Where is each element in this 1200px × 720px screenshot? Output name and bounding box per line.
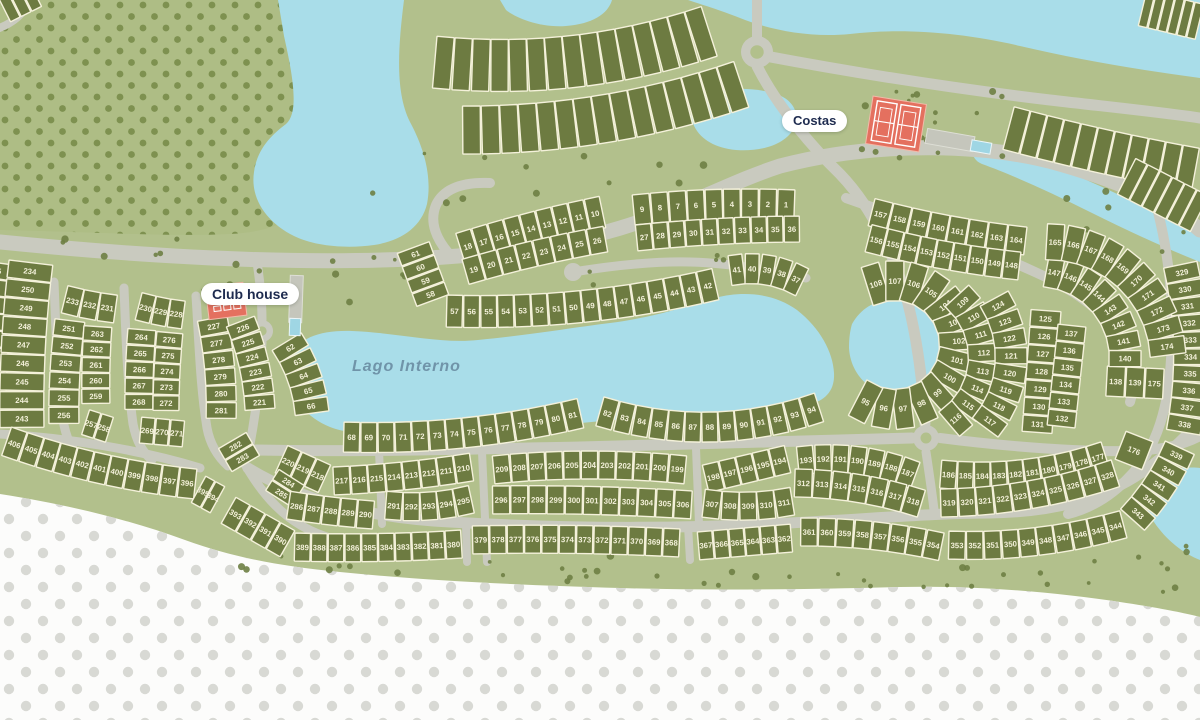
tree-icon — [337, 563, 342, 568]
lot-number: 3 — [748, 200, 753, 209]
lot-248[interactable]: 248 — [2, 316, 47, 336]
lot-320[interactable]: 320 — [958, 488, 976, 517]
lot-377[interactable]: 377 — [507, 525, 523, 553]
lot-231[interactable]: 231 — [97, 293, 117, 323]
lot-374[interactable]: 374 — [559, 525, 575, 553]
lot-335[interactable]: 335 — [1173, 365, 1200, 382]
lot-number: 68 — [347, 433, 357, 442]
lot-291[interactable]: 291 — [385, 491, 403, 520]
lot-365[interactable]: 365 — [729, 528, 746, 557]
lot-number: 279 — [213, 372, 227, 382]
lot-number: 130 — [1032, 402, 1046, 412]
lot-137[interactable]: 137 — [1056, 324, 1086, 343]
lot-86[interactable]: 86 — [667, 410, 685, 441]
lot-270[interactable]: 270 — [154, 418, 170, 445]
lot-298[interactable]: 298 — [529, 486, 546, 514]
lot-number: 360 — [820, 528, 834, 537]
lot-number: 291 — [387, 501, 401, 511]
lot-73[interactable]: 73 — [428, 420, 446, 451]
lot-250[interactable]: 250 — [5, 279, 51, 301]
lot-274[interactable]: 274 — [154, 363, 181, 379]
lot-number: 193 — [799, 455, 813, 465]
lot-251[interactable]: 251 — [53, 319, 85, 339]
lot-303[interactable]: 303 — [619, 487, 637, 516]
lot-359[interactable]: 359 — [836, 519, 854, 548]
tree-icon — [393, 258, 397, 262]
tree-icon — [158, 251, 164, 257]
lot-number: 372 — [595, 536, 609, 545]
lot-185[interactable]: 185 — [957, 461, 973, 490]
lot-382[interactable]: 382 — [412, 532, 429, 561]
lot-262[interactable]: 262 — [82, 342, 111, 358]
lot-number: 184 — [976, 472, 990, 481]
lot-279[interactable]: 279 — [205, 368, 236, 386]
lot-number: 276 — [162, 335, 176, 345]
lot-371[interactable]: 371 — [611, 526, 628, 554]
lot-51[interactable]: 51 — [548, 292, 566, 325]
lot-number: 72 — [416, 432, 426, 441]
tree-icon — [895, 90, 899, 94]
lot-number: 57 — [450, 307, 459, 316]
lot-121[interactable]: 121 — [995, 348, 1027, 365]
lot[interactable] — [463, 106, 481, 154]
lot-246[interactable]: 246 — [0, 354, 45, 373]
lot-number: 370 — [630, 537, 644, 546]
lot-269[interactable]: 269 — [139, 417, 155, 444]
lot-shape — [518, 103, 539, 152]
lot-41[interactable]: 41 — [728, 254, 746, 286]
lot-367[interactable]: 367 — [697, 531, 714, 560]
lot-210[interactable]: 210 — [453, 453, 473, 483]
lot-243[interactable]: 243 — [0, 410, 44, 428]
lot-265[interactable]: 265 — [126, 345, 155, 362]
lot-49[interactable]: 49 — [581, 289, 600, 323]
lot-85[interactable]: 85 — [649, 408, 669, 440]
lot-384[interactable]: 384 — [378, 533, 394, 561]
lot-375[interactable]: 375 — [542, 525, 558, 553]
lot-319[interactable]: 319 — [940, 489, 957, 517]
lot-215[interactable]: 215 — [367, 464, 385, 493]
lot-292[interactable]: 292 — [403, 493, 419, 521]
tree-icon — [859, 146, 865, 152]
lot-302[interactable]: 302 — [601, 487, 619, 516]
lot-209[interactable]: 209 — [492, 454, 511, 483]
lot-number: 313 — [815, 480, 829, 490]
lot-299[interactable]: 299 — [547, 486, 564, 514]
lot-number: 387 — [329, 543, 342, 552]
lot-208[interactable]: 208 — [510, 453, 528, 482]
lot[interactable] — [500, 104, 520, 153]
lot[interactable] — [491, 39, 508, 91]
lot-271[interactable]: 271 — [169, 420, 185, 447]
lot-216[interactable]: 216 — [350, 465, 368, 494]
lot-number: 247 — [17, 340, 30, 350]
lot-249[interactable]: 249 — [3, 298, 48, 319]
lot-56[interactable]: 56 — [464, 295, 480, 327]
lot-389[interactable]: 389 — [294, 533, 310, 561]
tree-icon — [945, 583, 949, 587]
lot-304[interactable]: 304 — [637, 488, 655, 517]
lot-264[interactable]: 264 — [127, 329, 156, 346]
lot-number: 134 — [1059, 380, 1074, 390]
lot-1[interactable]: 1 — [777, 189, 795, 220]
lot-357[interactable]: 357 — [870, 522, 890, 552]
lot-33[interactable]: 33 — [734, 217, 750, 244]
lot-272[interactable]: 272 — [153, 396, 179, 411]
lot-40[interactable]: 40 — [745, 254, 759, 284]
lot[interactable] — [471, 39, 490, 92]
lot-358[interactable]: 358 — [853, 520, 872, 549]
lot-29[interactable]: 29 — [668, 221, 685, 248]
lot-34[interactable]: 34 — [751, 217, 767, 243]
lot-396[interactable]: 396 — [177, 467, 197, 499]
lot-26[interactable]: 26 — [586, 226, 607, 255]
lot[interactable] — [481, 105, 500, 153]
club-house-label[interactable]: Club house — [201, 283, 299, 305]
lot-number: 253 — [59, 359, 73, 369]
lot-number: 7 — [675, 202, 680, 211]
lot-72[interactable]: 72 — [412, 421, 429, 452]
lot-55[interactable]: 55 — [481, 295, 497, 327]
lot-175[interactable]: 175 — [1144, 368, 1164, 399]
lot-number: 73 — [433, 431, 443, 441]
lot-278[interactable]: 278 — [203, 350, 235, 369]
lot-number: 265 — [134, 349, 148, 359]
lot-386[interactable]: 386 — [345, 534, 361, 562]
lot-288[interactable]: 288 — [321, 496, 340, 526]
lot-200[interactable]: 200 — [650, 453, 668, 482]
tree-icon — [1136, 555, 1141, 560]
lot-305[interactable]: 305 — [656, 489, 674, 518]
lot[interactable] — [432, 36, 454, 89]
lot-260[interactable]: 260 — [82, 373, 110, 388]
lot-89[interactable]: 89 — [718, 411, 736, 442]
lot-number: 234 — [23, 266, 38, 277]
lot-201[interactable]: 201 — [633, 452, 651, 481]
lot-280[interactable]: 280 — [206, 385, 236, 402]
lot-361[interactable]: 361 — [801, 518, 818, 546]
lot[interactable] — [518, 103, 539, 152]
lot-383[interactable]: 383 — [395, 533, 411, 561]
lot-number: 331 — [1181, 301, 1196, 312]
map-svg: 2352362372382392402412422342502492482472… — [0, 0, 1200, 720]
lot-68[interactable]: 68 — [343, 422, 360, 452]
lot-number: 266 — [133, 365, 147, 374]
lot-214[interactable]: 214 — [385, 462, 404, 491]
lot-140[interactable]: 140 — [1109, 350, 1141, 366]
tree-icon — [914, 91, 921, 98]
lot-245[interactable]: 245 — [0, 373, 44, 391]
lot-174[interactable]: 174 — [1148, 336, 1186, 358]
lot-7[interactable]: 7 — [669, 191, 688, 222]
lot-35[interactable]: 35 — [767, 216, 783, 242]
lot-number: 268 — [132, 398, 146, 407]
tree-icon — [862, 578, 866, 582]
lot-387[interactable]: 387 — [328, 534, 344, 562]
lot-number: 54 — [501, 307, 511, 316]
lot-349[interactable]: 349 — [1018, 528, 1037, 558]
lot-number: 336 — [1182, 386, 1196, 396]
map-canvas[interactable]: 2352362372382392402412422342502492482472… — [0, 0, 1200, 720]
lot-397[interactable]: 397 — [159, 465, 179, 497]
lot-125[interactable]: 125 — [1030, 310, 1061, 329]
lot-number: 51 — [552, 304, 562, 314]
lot-370[interactable]: 370 — [628, 527, 645, 556]
lot-50[interactable]: 50 — [564, 291, 583, 324]
lot-293[interactable]: 293 — [420, 491, 438, 520]
lot-number: 292 — [405, 502, 419, 511]
lot-266[interactable]: 266 — [125, 361, 154, 377]
lot-number: 191 — [834, 455, 848, 465]
lot-number: 112 — [977, 348, 991, 358]
lot-number: 209 — [495, 464, 509, 474]
lot-362[interactable]: 362 — [776, 524, 793, 553]
lot-71[interactable]: 71 — [395, 422, 412, 453]
lot-number: 243 — [15, 414, 29, 423]
lot-70[interactable]: 70 — [378, 422, 394, 452]
lot-number: 50 — [569, 303, 579, 313]
lot-number: 310 — [759, 500, 773, 510]
lot-254[interactable]: 254 — [49, 372, 80, 390]
lot-207[interactable]: 207 — [528, 452, 546, 481]
lot-8[interactable]: 8 — [650, 192, 669, 223]
lot-363[interactable]: 363 — [760, 525, 777, 554]
costas-label[interactable]: Costas — [782, 110, 847, 132]
lot-378[interactable]: 378 — [490, 525, 506, 553]
lot-211[interactable]: 211 — [436, 456, 456, 486]
lot-308[interactable]: 308 — [721, 491, 739, 520]
lot-191[interactable]: 191 — [832, 445, 849, 474]
lot-136[interactable]: 136 — [1055, 341, 1085, 360]
lot-150[interactable]: 150 — [967, 246, 987, 276]
lot-53[interactable]: 53 — [514, 294, 531, 327]
lot-30[interactable]: 30 — [685, 220, 702, 247]
lot-268[interactable]: 268 — [125, 394, 153, 409]
lot-87[interactable]: 87 — [684, 412, 701, 442]
lot-number: 351 — [986, 541, 1000, 551]
lot-368[interactable]: 368 — [663, 528, 680, 557]
lot-380[interactable]: 380 — [445, 530, 462, 559]
lot-139[interactable]: 139 — [1125, 367, 1145, 398]
lot-306[interactable]: 306 — [674, 490, 693, 519]
lot-301[interactable]: 301 — [583, 486, 601, 514]
lot-286[interactable]: 286 — [286, 491, 306, 521]
tree-icon — [1045, 582, 1050, 587]
lot-149[interactable]: 149 — [985, 248, 1005, 278]
lot-351[interactable]: 351 — [984, 531, 1002, 560]
tree-icon — [591, 282, 596, 287]
lot-203[interactable]: 203 — [599, 451, 616, 479]
lot[interactable] — [452, 38, 472, 91]
lot-6[interactable]: 6 — [687, 190, 705, 221]
tree-icon — [588, 270, 592, 274]
lot-263[interactable]: 263 — [83, 326, 112, 342]
lot-255[interactable]: 255 — [49, 390, 79, 407]
lot-number: 281 — [215, 406, 229, 415]
lot-number: 135 — [1060, 363, 1075, 373]
lot-31[interactable]: 31 — [701, 219, 718, 246]
lot-212[interactable]: 212 — [419, 458, 439, 488]
tree-icon — [654, 573, 659, 578]
lot-4[interactable]: 4 — [723, 189, 740, 219]
lot-256[interactable]: 256 — [49, 407, 79, 423]
tree-icon — [459, 195, 466, 202]
lot-number: 382 — [413, 542, 427, 552]
lot-204[interactable]: 204 — [581, 451, 597, 479]
lot-135[interactable]: 135 — [1053, 358, 1083, 377]
lot-number: 362 — [777, 534, 791, 544]
lot-373[interactable]: 373 — [576, 525, 593, 553]
lot-126[interactable]: 126 — [1029, 327, 1060, 346]
lot-90[interactable]: 90 — [734, 409, 753, 441]
lot-366[interactable]: 366 — [713, 529, 730, 558]
lot-number: 309 — [741, 502, 755, 511]
lot-314[interactable]: 314 — [830, 471, 850, 501]
lot-number: 52 — [535, 305, 545, 315]
lot-number: 175 — [1148, 379, 1162, 389]
lot-52[interactable]: 52 — [531, 293, 549, 326]
lot-296[interactable]: 296 — [492, 486, 509, 514]
lot-199[interactable]: 199 — [668, 454, 687, 483]
lot-376[interactable]: 376 — [525, 525, 541, 553]
tree-icon — [975, 111, 979, 115]
lot-number: 251 — [62, 324, 77, 335]
lot-number: 364 — [746, 537, 760, 547]
tree-icon — [897, 155, 903, 161]
lot-134[interactable]: 134 — [1051, 375, 1081, 394]
lot-322[interactable]: 322 — [993, 484, 1013, 514]
lot-379[interactable]: 379 — [472, 526, 489, 554]
lot-206[interactable]: 206 — [546, 451, 563, 480]
lot-275[interactable]: 275 — [155, 347, 182, 363]
lot-number: 321 — [978, 496, 992, 506]
lot-290[interactable]: 290 — [356, 500, 374, 529]
lot-number: 263 — [91, 329, 105, 339]
lot-36[interactable]: 36 — [784, 216, 799, 242]
lot-number: 277 — [209, 338, 223, 349]
lot-number: 365 — [730, 538, 744, 548]
lot-364[interactable]: 364 — [744, 527, 761, 556]
lot-54[interactable]: 54 — [497, 295, 514, 327]
lot-2[interactable]: 2 — [759, 189, 776, 219]
tree-icon — [1165, 566, 1170, 571]
lot-281[interactable]: 281 — [206, 402, 236, 418]
lot-276[interactable]: 276 — [156, 331, 183, 348]
lot-289[interactable]: 289 — [339, 498, 358, 527]
lot[interactable] — [509, 39, 528, 91]
lot-252[interactable]: 252 — [51, 336, 82, 355]
lot-205[interactable]: 205 — [564, 451, 581, 479]
lot-74[interactable]: 74 — [445, 418, 464, 449]
lot-244[interactable]: 244 — [0, 391, 44, 409]
lot-217[interactable]: 217 — [333, 466, 351, 495]
lot-3[interactable]: 3 — [741, 189, 758, 219]
lot-138[interactable]: 138 — [1106, 366, 1126, 397]
lot-321[interactable]: 321 — [975, 486, 994, 515]
lot-133[interactable]: 133 — [1049, 392, 1079, 411]
lot-number: 374 — [561, 535, 575, 544]
lot-381[interactable]: 381 — [428, 531, 445, 560]
lot-336[interactable]: 336 — [1171, 381, 1200, 400]
lot-273[interactable]: 273 — [153, 380, 179, 395]
lot[interactable] — [527, 38, 547, 91]
lot-300[interactable]: 300 — [565, 486, 582, 514]
lot-385[interactable]: 385 — [362, 533, 378, 561]
lot-350[interactable]: 350 — [1001, 529, 1019, 558]
lot-32[interactable]: 32 — [718, 218, 734, 245]
lot-number: 308 — [723, 501, 737, 511]
lot-27[interactable]: 27 — [635, 224, 653, 251]
tree-icon — [989, 88, 996, 95]
lot-5[interactable]: 5 — [705, 189, 723, 220]
lot-9[interactable]: 9 — [632, 193, 652, 224]
tree-icon — [911, 94, 915, 98]
lot-287[interactable]: 287 — [304, 494, 324, 524]
lot-369[interactable]: 369 — [645, 527, 662, 556]
lot-shape — [481, 105, 500, 153]
lot-213[interactable]: 213 — [402, 460, 421, 490]
lot-388[interactable]: 388 — [311, 533, 327, 561]
lot-186[interactable]: 186 — [940, 460, 958, 489]
lot-number: 244 — [15, 396, 29, 405]
roundabout-island — [921, 433, 932, 444]
lot-353[interactable]: 353 — [948, 531, 965, 559]
lot-number: 312 — [797, 479, 811, 488]
lot-228[interactable]: 228 — [167, 299, 185, 329]
lot-number: 199 — [670, 464, 684, 474]
lot-number: 127 — [1036, 349, 1050, 359]
tree-icon — [1181, 230, 1185, 234]
lot-202[interactable]: 202 — [616, 451, 633, 480]
lot-28[interactable]: 28 — [652, 222, 669, 249]
lot-75[interactable]: 75 — [462, 416, 481, 448]
lot-shape — [463, 106, 481, 154]
lot-307[interactable]: 307 — [702, 489, 722, 519]
lot-221[interactable]: 221 — [244, 394, 275, 410]
lot-148[interactable]: 148 — [1002, 250, 1021, 280]
lot-number: 264 — [134, 332, 148, 342]
lot-313[interactable]: 313 — [812, 470, 831, 499]
lot-number: 165 — [1048, 238, 1062, 248]
lot-57[interactable]: 57 — [446, 295, 463, 327]
lot-253[interactable]: 253 — [50, 354, 81, 372]
lot-247[interactable]: 247 — [1, 335, 46, 355]
lot-number: 320 — [960, 497, 974, 507]
lot-297[interactable]: 297 — [511, 486, 528, 514]
lot-312[interactable]: 312 — [794, 469, 812, 498]
tree-icon — [676, 180, 683, 187]
lot-348[interactable]: 348 — [1035, 525, 1055, 555]
lot-360[interactable]: 360 — [818, 518, 836, 547]
lot-310[interactable]: 310 — [756, 490, 775, 519]
lot-309[interactable]: 309 — [739, 492, 756, 520]
lot-352[interactable]: 352 — [966, 531, 983, 559]
lot-259[interactable]: 259 — [82, 389, 110, 404]
lot-shape — [509, 39, 528, 91]
lot-261[interactable]: 261 — [82, 357, 110, 372]
tree-icon — [714, 258, 718, 262]
lot-192[interactable]: 192 — [815, 445, 832, 473]
lot-311[interactable]: 311 — [773, 487, 794, 517]
lot-88[interactable]: 88 — [702, 412, 718, 442]
lot-267[interactable]: 267 — [125, 378, 153, 393]
lot-number: 221 — [253, 398, 267, 408]
lot-number: 137 — [1064, 329, 1078, 339]
lot-132[interactable]: 132 — [1047, 409, 1077, 428]
lot-222[interactable]: 222 — [242, 378, 274, 396]
lot-372[interactable]: 372 — [594, 526, 611, 554]
lot-69[interactable]: 69 — [361, 422, 377, 452]
